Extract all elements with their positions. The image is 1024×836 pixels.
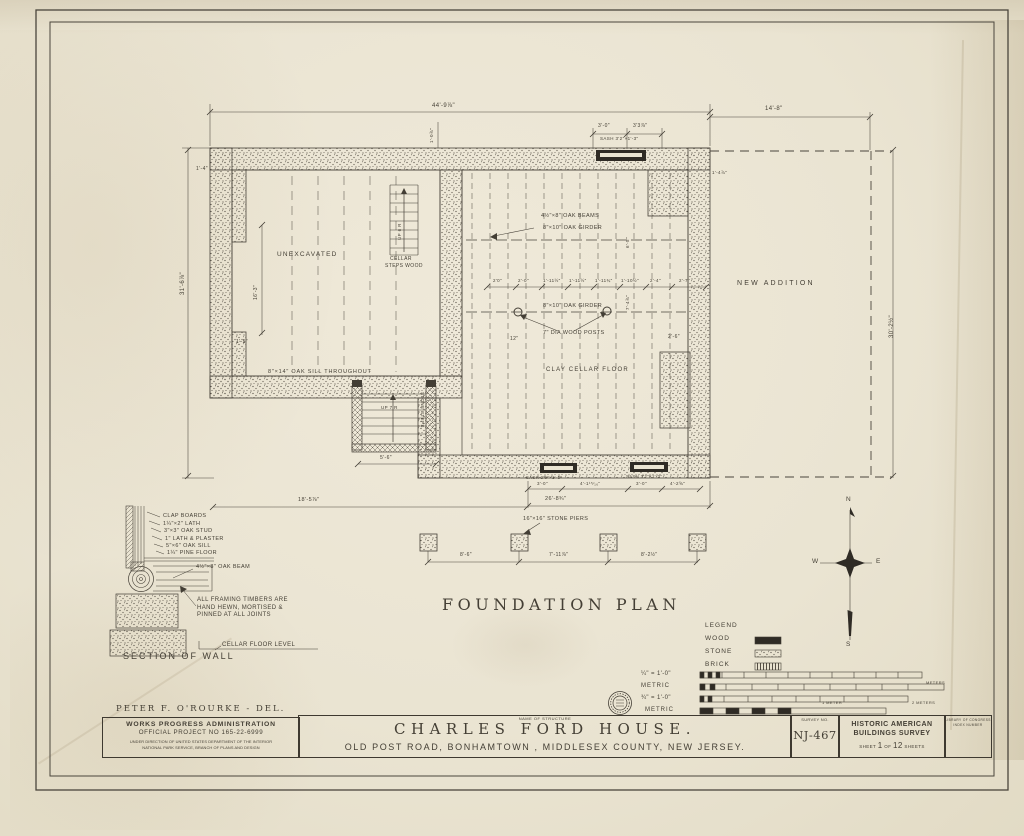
survey-number-block: SURVEY NO. NJ-467 — [790, 715, 840, 758]
structure-name: CHARLES FORD HOUSE. — [299, 722, 791, 738]
label-oak-beams: 4½"×8" OAK BEAMS — [541, 214, 599, 220]
dim-pier-1: 7'-11⅞" — [549, 553, 568, 558]
dim-right-offset: 1'-4⅞" — [712, 171, 727, 176]
dim-stair-rise: 1'-0⅞" — [430, 128, 435, 143]
dimension-lines — [182, 104, 893, 562]
dim-chimney: 2'-6" — [668, 335, 680, 340]
scale-imperial-three-quarter: ¾" = 1'-0" — [641, 695, 671, 701]
dim-window-b: 3'3⅞" — [633, 124, 647, 129]
scale-imperial-quarter: ¼" = 1'-0" — [641, 671, 671, 677]
wall-section-drawing — [110, 506, 318, 656]
section-label-sill: 5"×6" OAK SILL — [166, 544, 211, 550]
dim-left-height: 31'-6⅞" — [180, 272, 186, 295]
dim-top-width: 44'-9⅞" — [432, 103, 455, 109]
scale-two-meters-label: 2 METERS — [912, 701, 935, 705]
dim-girder-a: 6'-5" — [626, 237, 631, 248]
habs-seal-icon — [609, 692, 632, 715]
section-note-2: HAND HEWN, MORTISED & — [197, 605, 283, 611]
foundation-walls — [210, 148, 710, 478]
dim-addition-width: 14'-8" — [765, 106, 783, 112]
wpa-line-2: OFFICIAL PROJECT NO 165-22-6999 — [103, 730, 299, 737]
dim-pier-0: 8'-6" — [460, 553, 472, 558]
leader-arrow — [523, 529, 531, 535]
dim-sash-3: 4'-2⅝" — [670, 482, 685, 487]
sheet-word: SHEET — [859, 744, 876, 749]
survey-number-label: SURVEY NO. — [791, 718, 839, 722]
dim-mid-1: 2'-0" — [518, 279, 529, 284]
wpa-line-1: WORKS PROGRESS ADMINISTRATION — [103, 721, 299, 728]
label-sash-bottom-right: SASH 3'2"×1'-3" — [626, 475, 662, 479]
drawing-sheet: 44'-9⅞" 14'-8" 3'-0" 3'3⅞" SASH 3'2"×1'-… — [0, 0, 1024, 836]
label-sash-top: SASH 3'2"×1'-3" — [600, 137, 639, 142]
wpa-line-4: NATIONAL PARK SERVICE, BRANCH OF PLANS A… — [103, 746, 299, 750]
section-note-3: PINNED AT ALL JOINTS — [197, 612, 271, 618]
loc-line-2: INDEX NUMBER — [945, 724, 991, 727]
wpa-block: WORKS PROGRESS ADMINISTRATION OFFICIAL P… — [102, 717, 300, 758]
structure-address: OLD POST ROAD, BONHAMTOWN , MIDDLESEX CO… — [299, 743, 791, 752]
habs-block: HISTORIC AMERICAN BUILDINGS SURVEY SHEET… — [838, 715, 946, 758]
dim-sash-0: 3'-0" — [537, 482, 548, 487]
habs-line-2: BUILDINGS SURVEY — [839, 730, 945, 737]
dim-mid-5: 1'-10½" — [621, 279, 639, 284]
section-label-plaster: 1" LATH & PLASTER — [165, 537, 224, 543]
label-cellar-steps: CELLAR — [390, 257, 412, 262]
dim-wall-offset: 1'-4" — [196, 167, 208, 172]
legend-stone: STONE — [705, 649, 732, 656]
survey-number: NJ-467 — [791, 729, 839, 741]
label-stone-steps: STONE STEPS — [419, 392, 424, 428]
dim-mid-3: 1'-11½" — [569, 279, 587, 284]
section-label-floor: 1¼" PINE FLOOR — [167, 551, 217, 557]
dim-pier-2: 8'-2½" — [641, 553, 658, 558]
sheet-count-line: SHEET 1 OF 12 SHEETS — [839, 742, 945, 750]
dim-mid-2: 1'-11½" — [543, 279, 561, 284]
label-cellar-steps-2: STEPS WOOD — [385, 264, 423, 269]
legend-wood: WOOD — [705, 636, 730, 643]
dim-addition-height: 30'-2½" — [889, 315, 895, 338]
delineator-credit: PETER F. O'ROURKE - DEL. — [116, 705, 285, 714]
compass-w: W — [812, 559, 819, 566]
scale-metric-2: METRIC — [645, 707, 674, 713]
dim-mid-7: 2'-7" — [679, 279, 690, 284]
dim-cellar-width: 26'-8¾" — [545, 497, 566, 503]
dim-steps-width: 5'-6" — [380, 456, 392, 461]
compass-n: N — [846, 497, 851, 504]
dim-sash-1: 4'-1¹⁵⁄₁₆" — [580, 482, 600, 487]
sheets-word: SHEETS — [904, 744, 924, 749]
sheet-border — [36, 10, 1008, 790]
wpa-line-3: UNDER DIRECTION OF UNITED STATES DEPARTM… — [103, 740, 299, 744]
sheet-number: 1 — [878, 741, 883, 750]
sheet-total: 12 — [893, 741, 903, 750]
scale-one-meter-label: 1 METER — [822, 701, 842, 705]
compass-rose — [820, 507, 872, 640]
label-stone-piers: 16"×16" STONE PIERS — [523, 517, 588, 523]
label-sash-bottom-left: SASH 2'6"×1'-3" — [526, 476, 562, 480]
dim-mid-6: 2'-4" — [650, 279, 661, 284]
stone-piers — [420, 534, 706, 551]
dim-mid-0: 2'0" — [493, 279, 502, 284]
compass-s: S — [846, 642, 851, 649]
dim-left-bottom: 18'-5⅞" — [298, 498, 319, 504]
dim-girder-b: 7'-4⅞" — [626, 295, 631, 310]
structure-name-block: NAME OF STRUCTURE CHARLES FORD HOUSE. OL… — [298, 715, 792, 758]
label-new-addition: NEW ADDITION — [737, 280, 815, 287]
section-note-1: ALL FRAMING TIMBERS ARE — [197, 597, 288, 603]
label-girder-mid: 8"×10" OAK GIRDER — [543, 304, 602, 310]
of-word: OF — [884, 744, 891, 749]
section-title: SECTION OF WALL — [123, 652, 235, 661]
section-label-lath: 1¼"×2" LATH — [163, 522, 200, 528]
compass-e: E — [876, 559, 881, 566]
legend-swatches — [755, 637, 781, 670]
label-clay-floor: CLAY CELLAR FLOOR — [546, 367, 629, 373]
label-oak-sill: 8"×14" OAK SILL THROUGHOUT — [268, 370, 372, 376]
joist-lines-west — [292, 176, 396, 372]
plan-title: FOUNDATION PLAN — [442, 597, 681, 614]
section-label-stud: 3"×3" OAK STUD — [164, 529, 212, 535]
dim-small-left: 1'-5" — [236, 340, 248, 345]
label-up-7r: UP 7 R — [381, 406, 398, 411]
scale-meters-label: METERS — [926, 681, 945, 685]
dim-post-offset: 12" — [510, 337, 519, 342]
section-cellar-level: CELLAR FLOOR LEVEL — [222, 642, 295, 648]
section-label-clap: CLAP BOARDS — [163, 514, 206, 520]
dim-interior-height: 16'-3" — [254, 285, 259, 300]
dim-mid-4: 1'-11¾" — [595, 279, 613, 284]
scale-metric-1: METRIC — [641, 683, 670, 689]
loc-line-1: LIBRARY OF CONGRESS — [945, 719, 991, 722]
label-unexcavated: UNEXCAVATED — [277, 252, 338, 259]
dim-sash-2: 3'-0" — [636, 482, 647, 487]
legend-brick: BRICK — [705, 662, 730, 669]
dimension-ticks — [185, 109, 896, 565]
legend-title: LEGEND — [705, 623, 738, 630]
girder-lines — [466, 240, 686, 312]
dim-window-a: 3'-0" — [598, 124, 610, 129]
loc-index-block: LIBRARY OF CONGRESS INDEX NUMBER — [944, 715, 992, 758]
label-girder-top: 8"×10" OAK GIRDER — [543, 226, 602, 232]
leader-arrow — [490, 233, 497, 240]
habs-line-1: HISTORIC AMERICAN — [839, 721, 945, 728]
section-label-beam: 4½"×8" OAK BEAM — [196, 565, 250, 571]
scale-bars — [700, 672, 944, 714]
label-up-6r: UP 6 R — [398, 223, 403, 240]
cellar-stair — [390, 185, 418, 255]
new-addition-outline — [710, 151, 892, 477]
label-wood-posts: 7" DIA WOOD POSTS — [543, 331, 605, 337]
